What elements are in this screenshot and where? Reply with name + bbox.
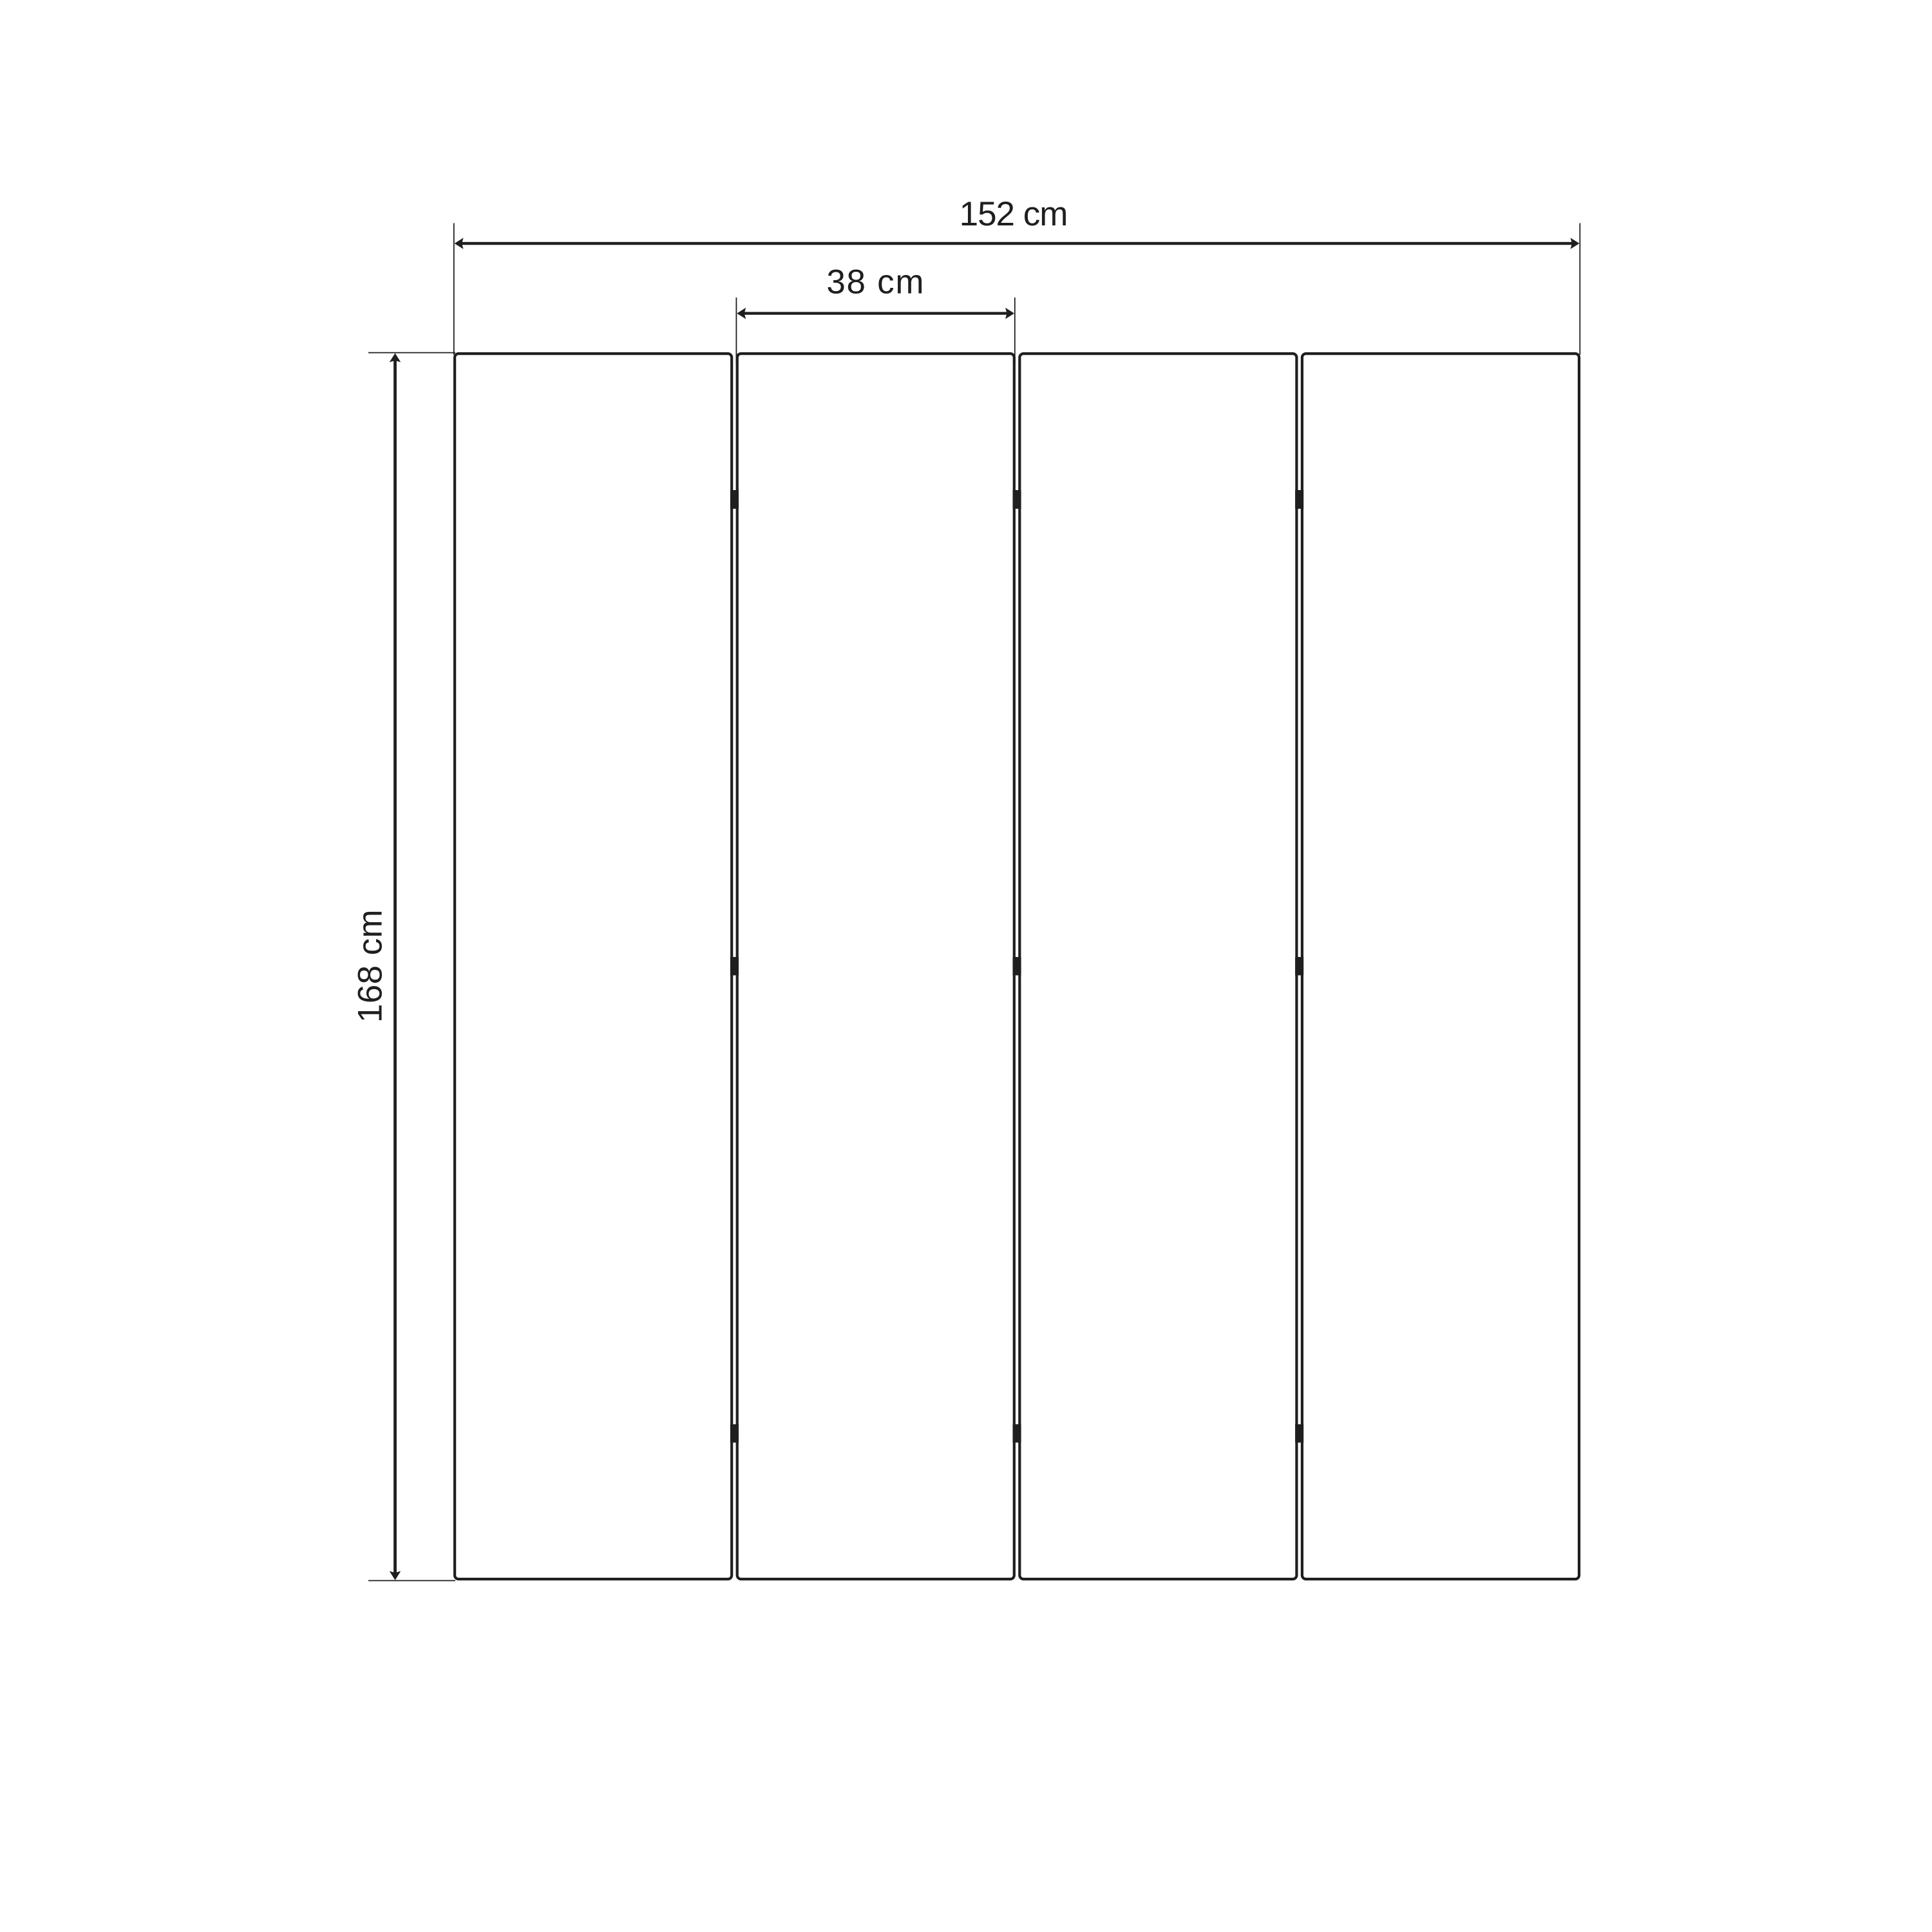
svg-text:152 cm: 152 cm	[960, 195, 1068, 233]
svg-text:38 cm: 38 cm	[826, 263, 925, 301]
svg-text:168 cm: 168 cm	[352, 909, 390, 1023]
